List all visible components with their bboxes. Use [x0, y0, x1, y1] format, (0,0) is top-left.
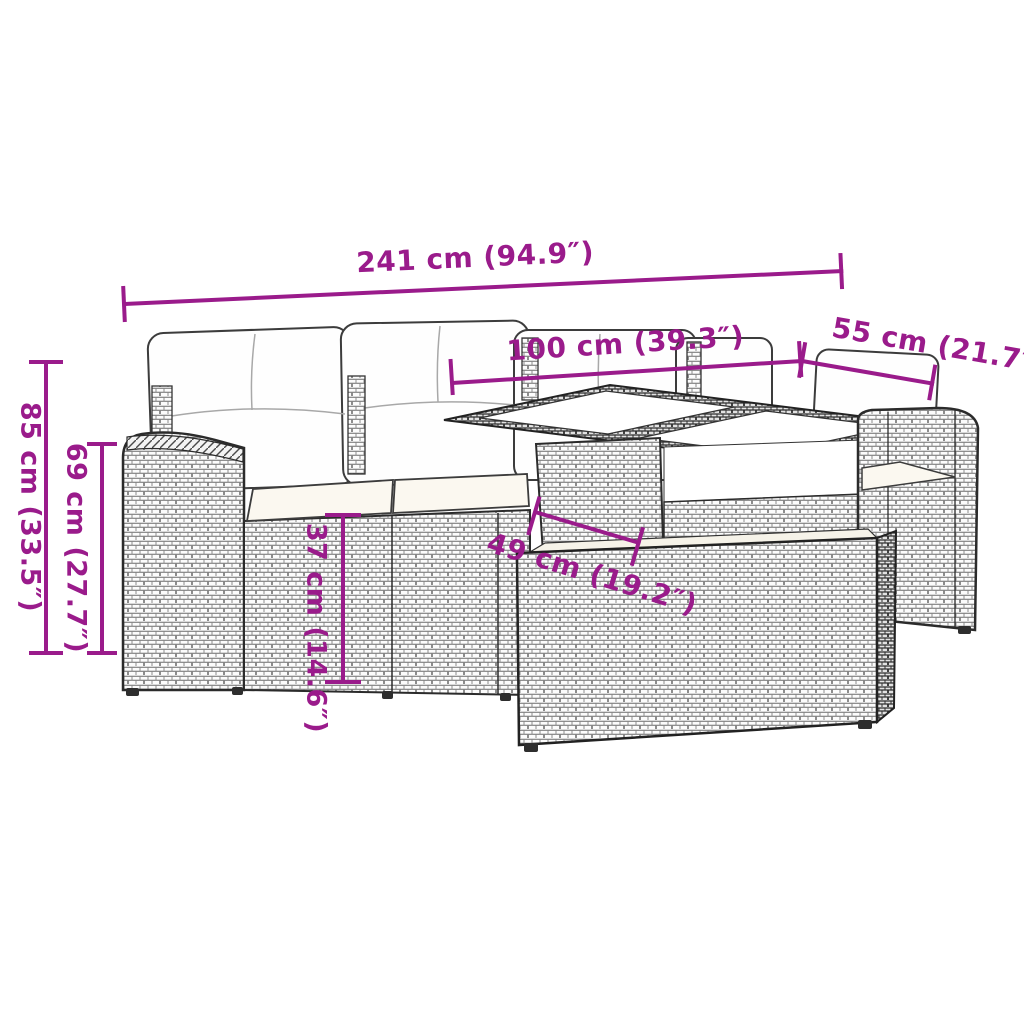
dimension-tick [325, 513, 361, 517]
furniture-illustration [0, 0, 1024, 1024]
dimension-tick [29, 360, 63, 364]
dimension-line [100, 444, 104, 653]
dimension-tick [29, 651, 63, 655]
sofa-left-arm [123, 432, 244, 690]
dimension-label-seat-height: 37 cm (14.6″) [303, 523, 330, 733]
dimension-label-total-height: 85 cm (33.5″) [17, 402, 44, 612]
seat-cushion [393, 474, 529, 513]
dimension-tick [87, 442, 117, 446]
dimension-line [341, 515, 345, 682]
product-dimension-diagram: 241 cm (94.9″) 100 cm (39.3″) 55 cm (21.… [0, 0, 1024, 1024]
ottoman-side [877, 531, 896, 722]
table-gap [664, 440, 862, 502]
dimension-label-arm-height: 69 cm (27.7″) [63, 443, 90, 653]
seat-base [244, 510, 530, 695]
back-pillow [341, 320, 532, 485]
dimension-tick [87, 651, 117, 655]
